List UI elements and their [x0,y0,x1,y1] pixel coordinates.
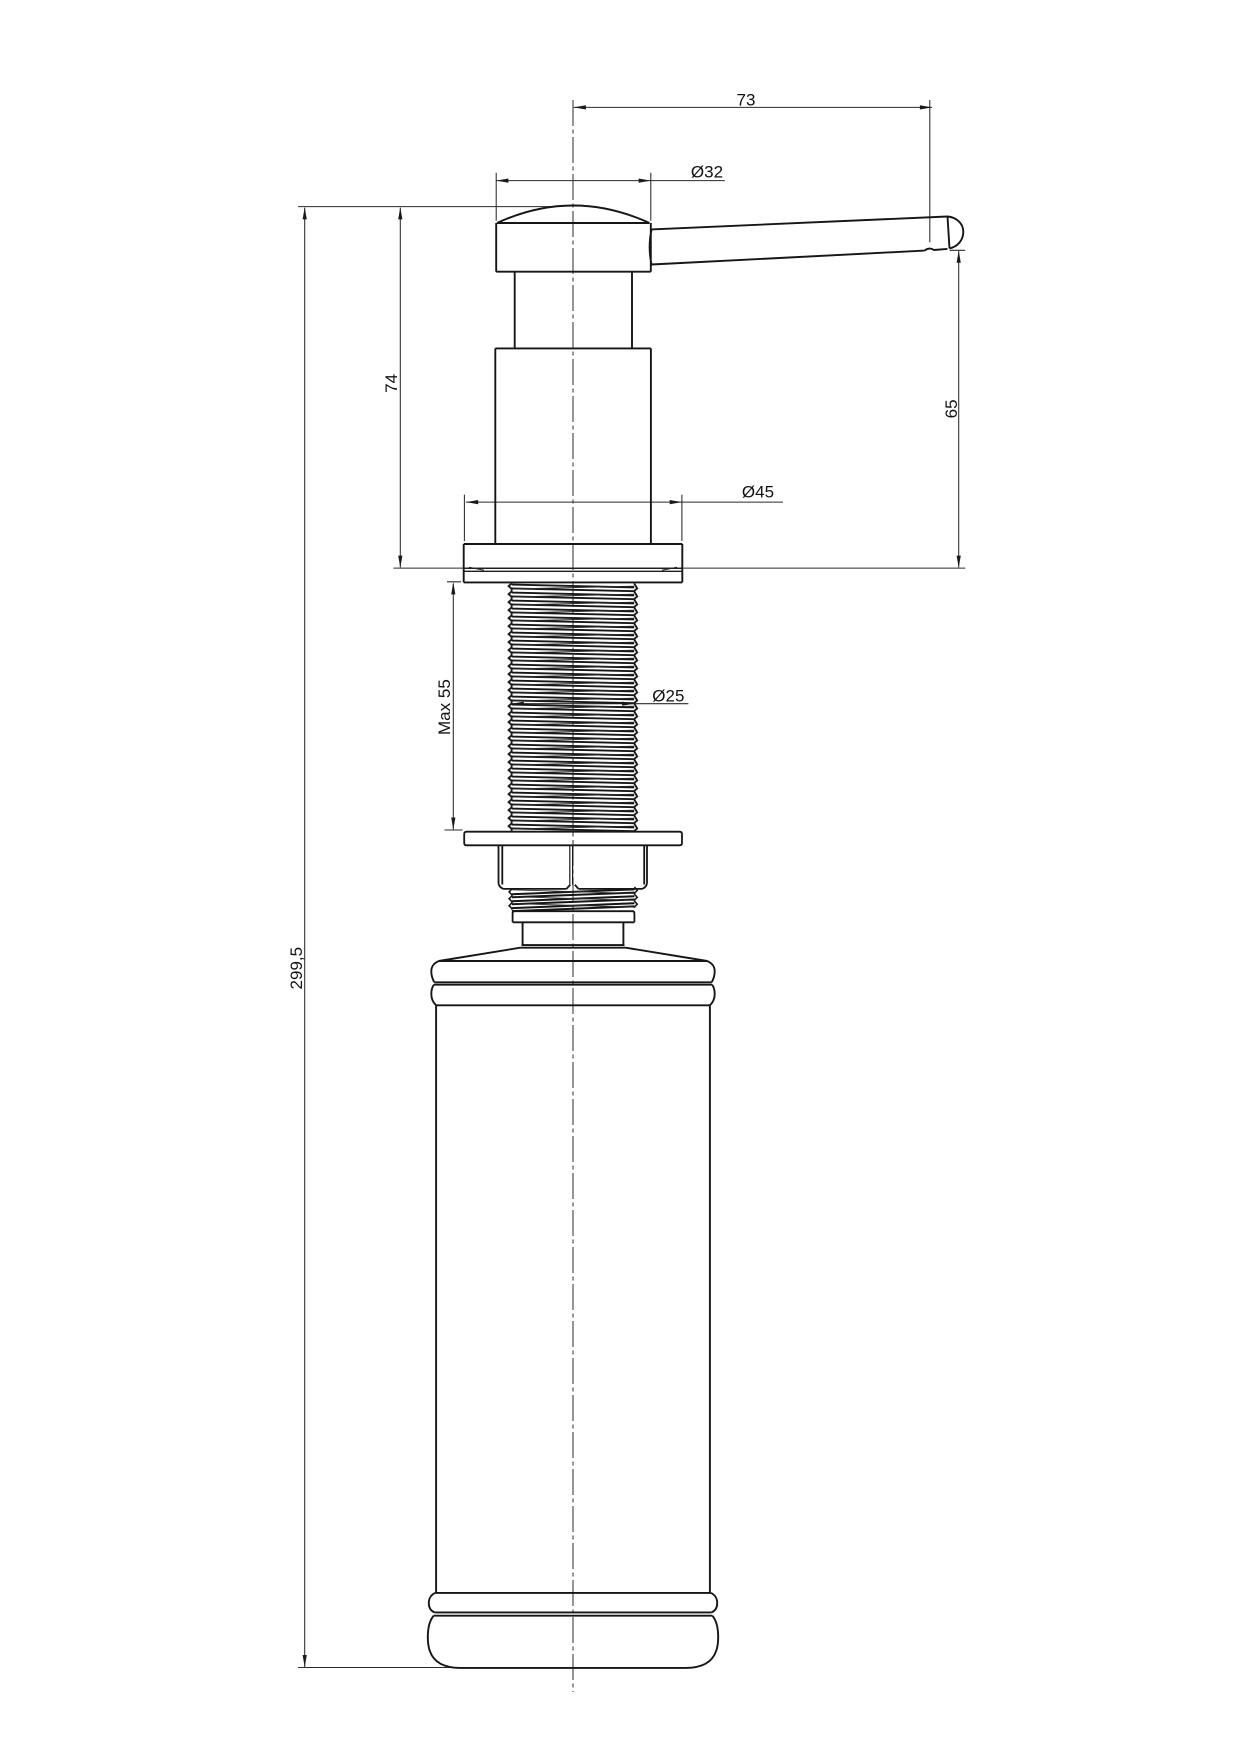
svg-text:65: 65 [942,399,961,418]
svg-text:Max 55: Max 55 [435,679,454,735]
svg-text:Ø32: Ø32 [691,163,723,182]
svg-text:Ø45: Ø45 [742,482,774,501]
svg-text:74: 74 [382,374,401,393]
svg-text:Ø25: Ø25 [652,686,684,705]
svg-text:299,5: 299,5 [287,947,306,990]
svg-text:73: 73 [737,90,756,109]
